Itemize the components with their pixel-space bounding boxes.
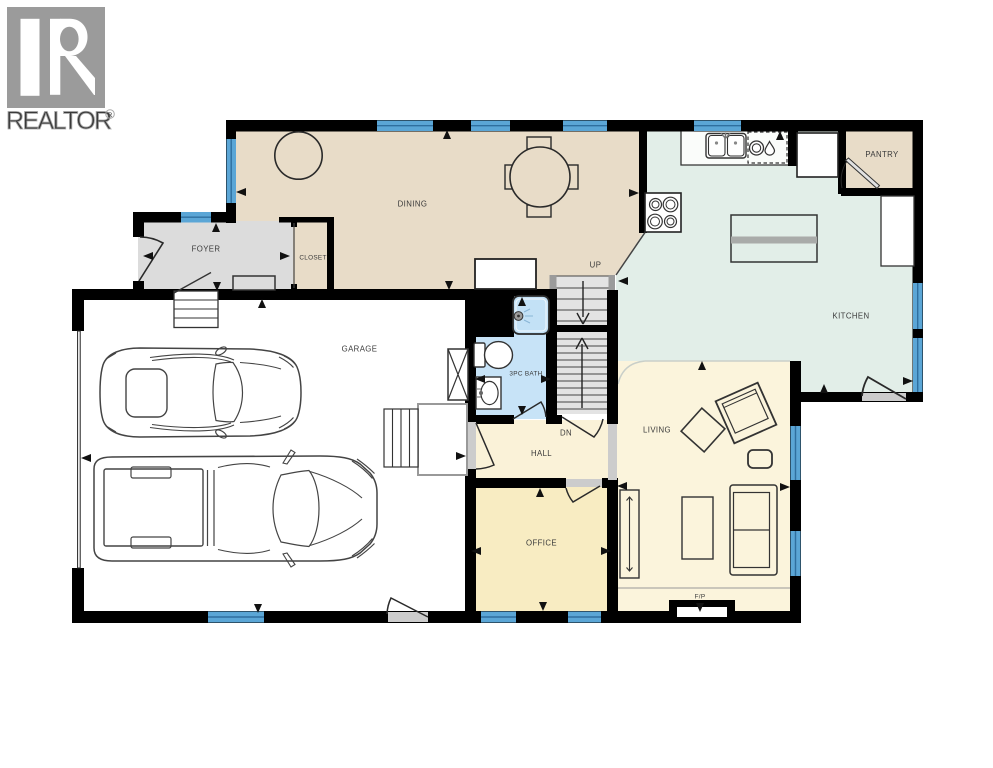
svg-text:DINING: DINING (398, 200, 428, 209)
svg-text:UP: UP (590, 261, 602, 270)
svg-text:GARAGE: GARAGE (342, 345, 378, 354)
svg-text:REALTOR: REALTOR (6, 107, 111, 135)
svg-text:CLOSET: CLOSET (299, 255, 326, 262)
svg-text:OFFICE: OFFICE (526, 539, 557, 548)
svg-text:HALL: HALL (531, 449, 552, 458)
svg-text:DN: DN (560, 429, 572, 438)
svg-text:FOYER: FOYER (192, 245, 221, 254)
svg-text:3PC BATH: 3PC BATH (509, 371, 542, 378)
svg-text:F/P: F/P (695, 594, 706, 601)
svg-text:PANTRY: PANTRY (865, 150, 899, 159)
svg-text:LIVING: LIVING (643, 426, 671, 435)
svg-text:KITCHEN: KITCHEN (832, 312, 869, 321)
svg-text:R: R (108, 112, 113, 119)
